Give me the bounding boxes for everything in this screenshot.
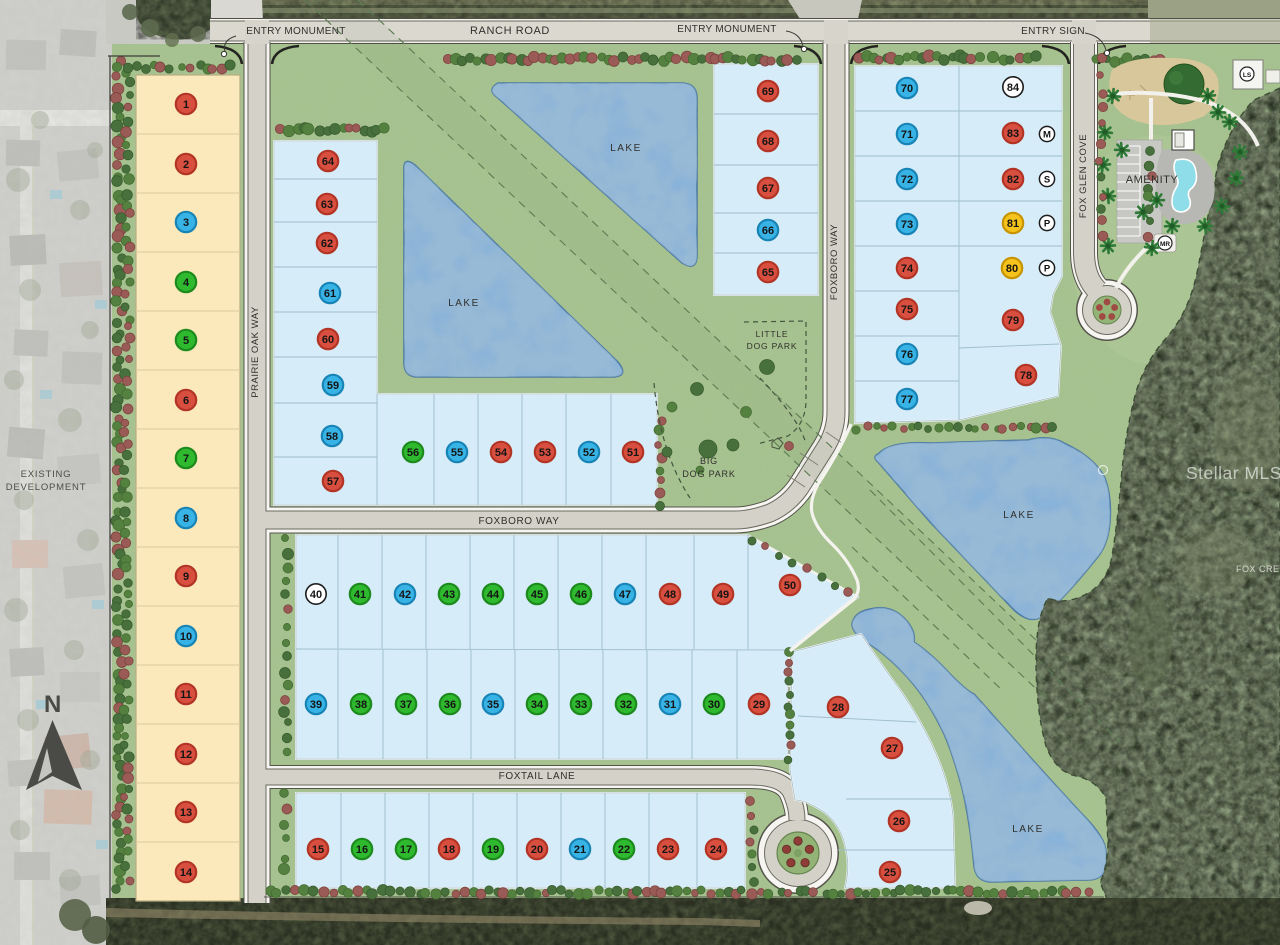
svg-text:50: 50: [784, 580, 796, 592]
svg-text:25: 25: [884, 867, 896, 879]
svg-text:20: 20: [531, 844, 543, 856]
svg-text:41: 41: [354, 589, 366, 601]
svg-text:MR: MR: [1160, 241, 1170, 248]
svg-text:56: 56: [407, 447, 419, 459]
svg-text:75: 75: [901, 304, 913, 316]
svg-text:3: 3: [183, 217, 189, 229]
svg-text:48: 48: [664, 589, 676, 601]
svg-text:LAKE: LAKE: [1003, 510, 1035, 521]
svg-text:58: 58: [326, 431, 338, 443]
svg-text:30: 30: [708, 699, 720, 711]
svg-text:FOXTAIL LANE: FOXTAIL LANE: [499, 771, 576, 782]
svg-text:PRAIRIE OAK WAY: PRAIRIE OAK WAY: [250, 306, 261, 398]
svg-text:EXISTING: EXISTING: [21, 469, 72, 480]
svg-text:2: 2: [183, 159, 189, 171]
svg-text:49: 49: [717, 589, 729, 601]
svg-text:21: 21: [574, 844, 586, 856]
svg-text:6: 6: [183, 395, 189, 407]
svg-text:36: 36: [444, 699, 456, 711]
svg-text:DEVELOPMENT: DEVELOPMENT: [6, 482, 87, 493]
svg-text:46: 46: [575, 589, 587, 601]
svg-text:38: 38: [355, 699, 367, 711]
svg-text:52: 52: [583, 447, 595, 459]
svg-text:4: 4: [183, 277, 190, 289]
svg-text:73: 73: [901, 219, 913, 231]
svg-text:35: 35: [487, 699, 499, 711]
svg-text:81: 81: [1007, 218, 1019, 230]
svg-text:5: 5: [183, 335, 189, 347]
svg-text:37: 37: [400, 699, 412, 711]
svg-text:BIG: BIG: [700, 456, 718, 466]
svg-text:69: 69: [762, 86, 774, 98]
svg-text:78: 78: [1020, 370, 1032, 382]
svg-text:43: 43: [443, 589, 455, 601]
svg-text:P: P: [1044, 263, 1051, 274]
svg-text:18: 18: [443, 844, 455, 856]
svg-text:34: 34: [531, 699, 544, 711]
svg-text:63: 63: [321, 199, 333, 211]
svg-text:27: 27: [886, 743, 898, 755]
svg-text:RANCH ROAD: RANCH ROAD: [470, 25, 550, 37]
svg-text:FOX GLEN COVE: FOX GLEN COVE: [1078, 134, 1089, 218]
svg-text:LAKE: LAKE: [448, 298, 480, 309]
svg-text:9: 9: [183, 571, 189, 583]
svg-text:77: 77: [901, 394, 913, 406]
svg-text:79: 79: [1007, 315, 1019, 327]
svg-text:Stellar MLS: Stellar MLS: [1186, 463, 1280, 483]
svg-text:51: 51: [627, 447, 639, 459]
svg-text:44: 44: [487, 589, 500, 601]
svg-text:82: 82: [1007, 174, 1019, 186]
svg-text:ENTRY SIGN: ENTRY SIGN: [1021, 26, 1085, 37]
svg-text:61: 61: [324, 288, 336, 300]
svg-text:47: 47: [619, 589, 631, 601]
svg-text:19: 19: [487, 844, 499, 856]
svg-text:DOG PARK: DOG PARK: [747, 341, 798, 351]
svg-text:FOXBORO WAY: FOXBORO WAY: [478, 516, 559, 527]
svg-text:26: 26: [893, 816, 905, 828]
svg-text:7: 7: [183, 453, 189, 465]
svg-text:LAKE: LAKE: [610, 143, 642, 154]
svg-text:29: 29: [753, 699, 765, 711]
svg-text:70: 70: [901, 83, 913, 95]
svg-text:LAKE: LAKE: [1012, 824, 1044, 835]
svg-text:23: 23: [662, 844, 674, 856]
svg-text:ENTRY MONUMENT: ENTRY MONUMENT: [677, 24, 776, 35]
svg-text:P: P: [1044, 218, 1051, 229]
svg-text:17: 17: [400, 844, 412, 856]
svg-text:39: 39: [310, 699, 322, 711]
svg-text:13: 13: [180, 807, 192, 819]
svg-text:54: 54: [495, 447, 508, 459]
svg-text:FOXBORO WAY: FOXBORO WAY: [829, 224, 840, 300]
svg-text:LS: LS: [1243, 72, 1252, 79]
svg-text:40: 40: [310, 589, 322, 601]
svg-text:LITTLE: LITTLE: [756, 329, 789, 339]
svg-text:72: 72: [901, 174, 913, 186]
svg-text:42: 42: [399, 589, 411, 601]
svg-text:57: 57: [327, 476, 339, 488]
svg-text:AMENITY: AMENITY: [1126, 174, 1179, 186]
svg-text:22: 22: [618, 844, 630, 856]
svg-text:55: 55: [451, 447, 463, 459]
svg-text:71: 71: [901, 129, 913, 141]
svg-text:84: 84: [1007, 82, 1020, 94]
svg-text:83: 83: [1007, 128, 1019, 140]
svg-text:N: N: [44, 691, 61, 718]
svg-text:M: M: [1043, 129, 1051, 140]
svg-text:32: 32: [620, 699, 632, 711]
svg-text:10: 10: [180, 631, 192, 643]
svg-text:11: 11: [180, 689, 192, 701]
svg-text:60: 60: [322, 334, 334, 346]
svg-text:64: 64: [322, 156, 335, 168]
svg-text:ENTRY MONUMENT: ENTRY MONUMENT: [246, 26, 345, 37]
svg-text:12: 12: [180, 749, 192, 761]
svg-text:53: 53: [539, 447, 551, 459]
svg-text:68: 68: [762, 136, 774, 148]
svg-text:62: 62: [321, 238, 333, 250]
svg-text:59: 59: [327, 380, 339, 392]
svg-text:S: S: [1044, 174, 1050, 185]
svg-text:DOG PARK: DOG PARK: [682, 469, 735, 479]
svg-text:33: 33: [575, 699, 587, 711]
svg-text:45: 45: [531, 589, 543, 601]
svg-text:FOX CRE: FOX CRE: [1236, 564, 1280, 574]
svg-text:65: 65: [762, 267, 774, 279]
svg-text:8: 8: [183, 513, 189, 525]
svg-text:80: 80: [1006, 263, 1018, 275]
svg-text:1: 1: [183, 99, 189, 111]
svg-text:28: 28: [832, 702, 844, 714]
svg-text:67: 67: [762, 183, 774, 195]
svg-text:14: 14: [180, 867, 193, 879]
svg-text:24: 24: [710, 844, 723, 856]
svg-text:31: 31: [664, 699, 676, 711]
svg-text:15: 15: [312, 844, 324, 856]
svg-text:76: 76: [901, 349, 913, 361]
svg-text:74: 74: [901, 263, 914, 275]
svg-text:16: 16: [356, 844, 368, 856]
svg-text:66: 66: [762, 225, 774, 237]
